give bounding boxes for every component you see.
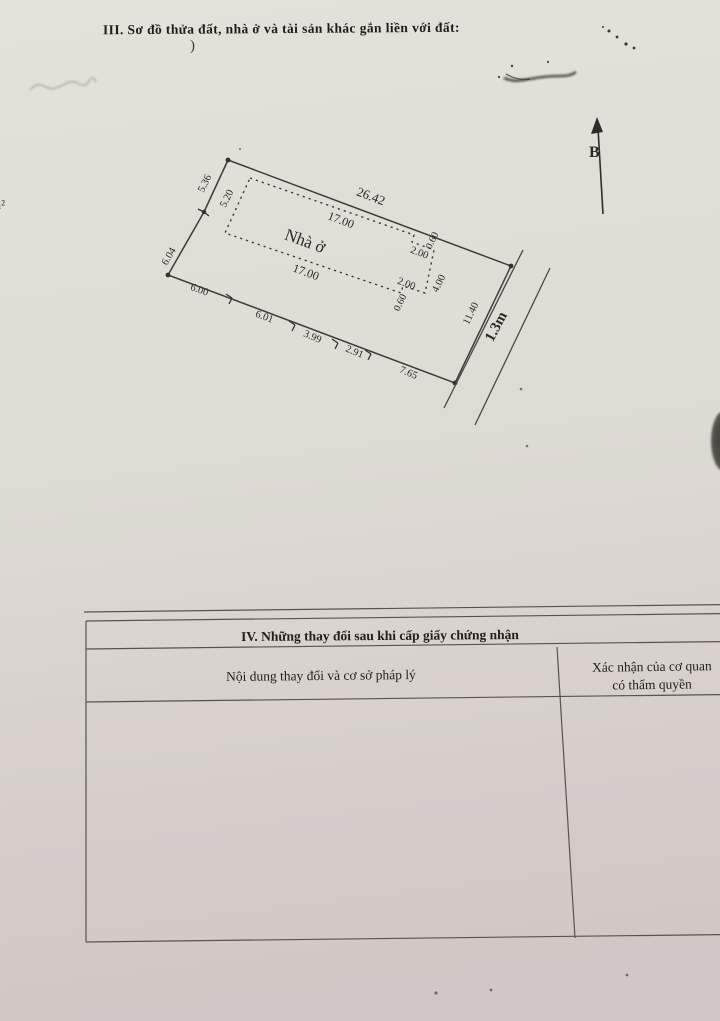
house-label: Nhà ở	[283, 226, 328, 256]
dimension-label: 11.40	[462, 301, 482, 326]
dimension-label: 17.00	[326, 210, 356, 231]
dimension-label: 7.65	[397, 366, 418, 383]
dimension-label: 2.00	[409, 246, 430, 262]
dimension-label: 2.91	[343, 345, 364, 362]
dimension-label: 0.60	[393, 293, 410, 313]
table-col2-header-line2: có thẩm quyền	[612, 675, 692, 694]
dimension-label: 6.04	[161, 246, 179, 267]
dimension-label: 26.42	[355, 185, 387, 208]
dimension-label: 2.00	[396, 277, 417, 293]
dimension-label: 6.01	[254, 310, 275, 326]
north-label: B	[589, 145, 600, 161]
table-title: IV. Những thay đổi sau khi cấp giấy chứn…	[100, 620, 660, 651]
dimension-label: 17.00	[291, 262, 320, 283]
diagram-label-layer: 26.4217.0017.002.000.602.000.604.005.365…	[0, 0, 720, 1021]
dimension-label: 5.20	[219, 188, 236, 209]
table-col2-header-line1: Xác nhận của cơ quan	[592, 657, 712, 677]
table-col2-header: Xác nhận của cơ quan có thẩm quyền	[560, 649, 720, 704]
scanned-certificate-page: { "page": { "section3_title": "III. Sơ đ…	[0, 0, 720, 1021]
dimension-label: 6.00	[189, 283, 210, 299]
table-col1-header: Nội dung thay đổi và cơ sở pháp lý	[86, 648, 557, 705]
dimension-label: 0.60	[425, 231, 442, 251]
dimension-label: 5.36	[197, 173, 214, 194]
dimension-label: 3.99	[301, 330, 322, 347]
dimension-label: 4.00	[431, 273, 448, 294]
alley-width-label: 1.3m	[483, 310, 511, 345]
